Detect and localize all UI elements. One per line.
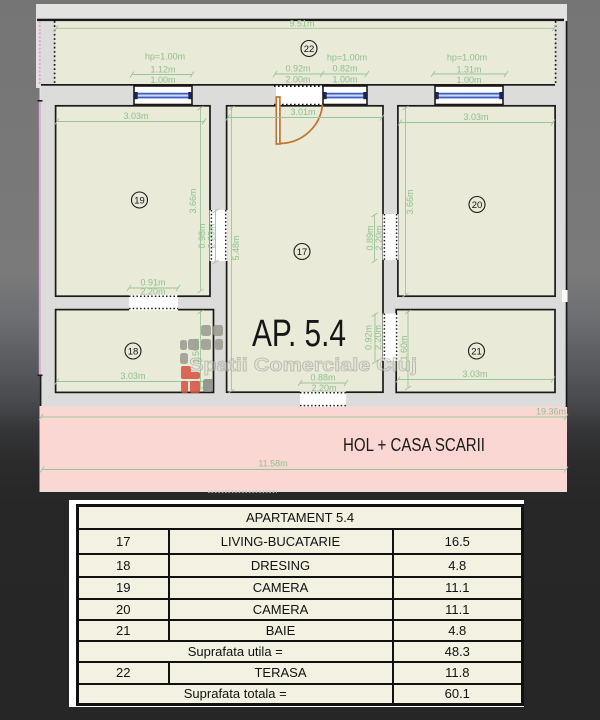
svg-text:2.20m: 2.20m — [140, 287, 165, 297]
svg-text:1.12m: 1.12m — [150, 65, 175, 75]
svg-text:3.66m: 3.66m — [188, 188, 198, 213]
svg-text:3.03m: 3.03m — [463, 112, 488, 122]
svg-text:AP. 5.4: AP. 5.4 — [252, 313, 346, 355]
svg-text:3.66m: 3.66m — [405, 189, 415, 214]
svg-text:19: 19 — [134, 196, 145, 207]
svg-text:hp=1.00m: hp=1.00m — [327, 53, 367, 63]
svg-text:2.20m: 2.20m — [373, 325, 383, 350]
svg-text:17: 17 — [297, 247, 308, 258]
svg-text:3.01m: 3.01m — [290, 107, 315, 117]
svg-text:1.31m: 1.31m — [456, 65, 481, 75]
svg-text:3.03m: 3.03m — [120, 371, 145, 381]
svg-text:0.92m: 0.92m — [364, 325, 374, 350]
svg-text:11.58m: 11.58m — [258, 459, 287, 469]
svg-text:0.98m: 0.98m — [197, 223, 207, 248]
svg-text:0.92m: 0.92m — [285, 64, 310, 74]
svg-text:2.20m: 2.20m — [311, 383, 336, 393]
svg-text:1.00m: 1.00m — [150, 75, 175, 85]
svg-text:3.03m: 3.03m — [123, 111, 148, 121]
svg-text:3.03m: 3.03m — [462, 369, 487, 379]
svg-text:0.82m: 0.82m — [332, 64, 357, 74]
svg-text:Spatii Comerciale Cluj: Spatii Comerciale Cluj — [189, 355, 417, 375]
svg-text:1.00m: 1.00m — [332, 75, 357, 85]
svg-text:21: 21 — [471, 347, 482, 358]
svg-text:9.51m: 9.51m — [289, 19, 314, 29]
svg-text:19.36m: 19.36m — [536, 407, 566, 417]
svg-text:hp=1.00m: hp=1.00m — [145, 52, 185, 62]
svg-text:5.48m: 5.48m — [231, 235, 241, 260]
svg-text:2.20m: 2.20m — [374, 225, 384, 250]
svg-text:2.00m: 2.00m — [285, 75, 310, 85]
svg-text:18: 18 — [128, 347, 139, 358]
svg-text:HOL + CASA SCARII: HOL + CASA SCARII — [343, 435, 485, 455]
svg-text:2.20m: 2.20m — [207, 223, 217, 248]
svg-text:22: 22 — [304, 44, 315, 55]
svg-text:1.00m: 1.00m — [456, 75, 481, 85]
svg-text:hp=1.00m: hp=1.00m — [447, 53, 487, 63]
svg-text:20: 20 — [472, 200, 483, 211]
